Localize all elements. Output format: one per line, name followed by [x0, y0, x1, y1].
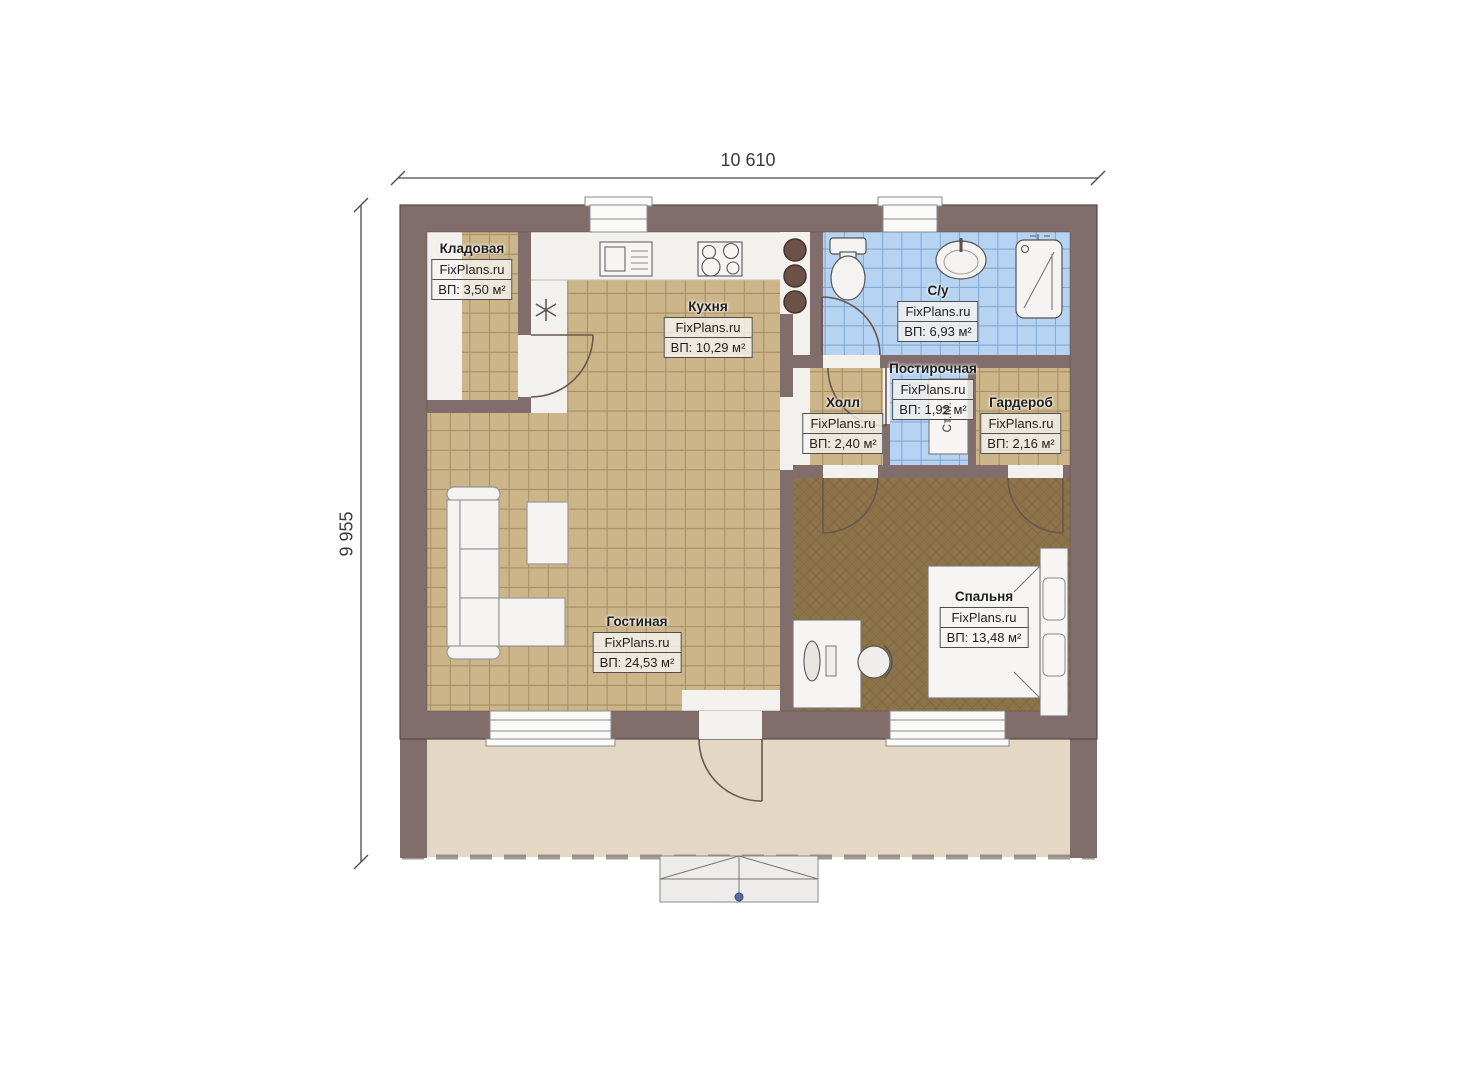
terrace — [402, 739, 1095, 857]
terrace-door-opening — [699, 711, 762, 739]
room-area: ВП: 10,29 м² — [665, 337, 752, 357]
room-label-bathroom: С/у FixPlans.ru ВП: 6,93 м² — [897, 283, 978, 342]
window-bottom-living — [486, 711, 615, 746]
room-name: Гардероб — [980, 395, 1061, 410]
window-top-bathroom — [878, 197, 942, 232]
monitor-icon — [804, 641, 820, 681]
room-info-box: FixPlans.ru ВП: 1,92 м² — [892, 379, 973, 420]
room-label-kitchen: Кухня FixPlans.ru ВП: 10,29 м² — [664, 299, 753, 358]
toilet-icon — [830, 238, 866, 300]
room-label-living: Гостиная FixPlans.ru ВП: 24,53 м² — [593, 614, 682, 673]
washing-machine-label: Ст.М. — [942, 402, 954, 433]
floor-plan-canvas: 10 610 9 955 Кладовая FixPlans.ru ВП: 3,… — [0, 0, 1474, 1080]
room-watermark: FixPlans.ru — [665, 318, 752, 337]
room-area: ВП: 2,16 м² — [981, 433, 1060, 453]
shower-icon — [1016, 234, 1062, 318]
room-name: Спальня — [940, 589, 1029, 604]
room-area: ВП: 6,93 м² — [898, 321, 977, 341]
ventilation-stack — [780, 232, 810, 314]
room-area: ВП: 2,40 м² — [803, 433, 882, 453]
room-watermark: FixPlans.ru — [941, 608, 1028, 627]
coffee-table — [527, 502, 568, 564]
room-area: ВП: 24,53 м² — [594, 652, 681, 672]
room-label-hall: Холл FixPlans.ru ВП: 2,40 м² — [802, 395, 883, 454]
room-name: С/у — [897, 283, 978, 298]
room-watermark: FixPlans.ru — [594, 633, 681, 652]
dimension-height-label: 9 955 — [337, 511, 358, 556]
room-watermark: FixPlans.ru — [432, 260, 511, 279]
window-bottom-bedroom — [886, 711, 1009, 746]
keyboard-icon — [826, 646, 836, 676]
room-watermark: FixPlans.ru — [893, 380, 972, 399]
room-info-box: FixPlans.ru ВП: 24,53 м² — [593, 632, 682, 673]
room-name: Постирочная — [889, 361, 977, 376]
kitchen-sink-icon — [600, 242, 652, 276]
room-info-box: FixPlans.ru ВП: 2,16 м² — [980, 413, 1061, 454]
room-label-storage: Кладовая FixPlans.ru ВП: 3,50 м² — [431, 241, 512, 300]
dimension-line-top — [391, 171, 1105, 185]
room-area: ВП: 13,48 м² — [941, 627, 1028, 647]
stove-icon — [698, 242, 742, 276]
room-info-box: FixPlans.ru ВП: 13,48 м² — [940, 607, 1029, 648]
room-info-box: FixPlans.ru ВП: 10,29 м² — [664, 317, 753, 358]
desk — [793, 620, 861, 708]
room-info-box: FixPlans.ru ВП: 3,50 м² — [431, 259, 512, 300]
room-area: ВП: 1,92 м² — [893, 399, 972, 419]
room-watermark: FixPlans.ru — [803, 414, 882, 433]
dimension-width-label: 10 610 — [720, 150, 775, 171]
room-label-bedroom: Спальня FixPlans.ru ВП: 13,48 м² — [940, 589, 1029, 648]
steps-marker-dot — [735, 893, 743, 901]
room-name: Кладовая — [431, 241, 512, 256]
room-label-wardrobe: Гардероб FixPlans.ru ВП: 2,16 м² — [980, 395, 1061, 454]
entrance-steps — [660, 856, 818, 902]
room-name: Холл — [802, 395, 883, 410]
room-info-box: FixPlans.ru ВП: 2,40 м² — [802, 413, 883, 454]
room-watermark: FixPlans.ru — [981, 414, 1060, 433]
room-area: ВП: 3,50 м² — [432, 279, 511, 299]
room-name: Кухня — [664, 299, 753, 314]
window-top-kitchen — [585, 197, 652, 232]
room-label-laundry: Постирочная FixPlans.ru ВП: 1,92 м² — [889, 361, 977, 420]
room-name: Гостиная — [593, 614, 682, 629]
room-info-box: FixPlans.ru ВП: 6,93 м² — [897, 301, 978, 342]
room-watermark: FixPlans.ru — [898, 302, 977, 321]
